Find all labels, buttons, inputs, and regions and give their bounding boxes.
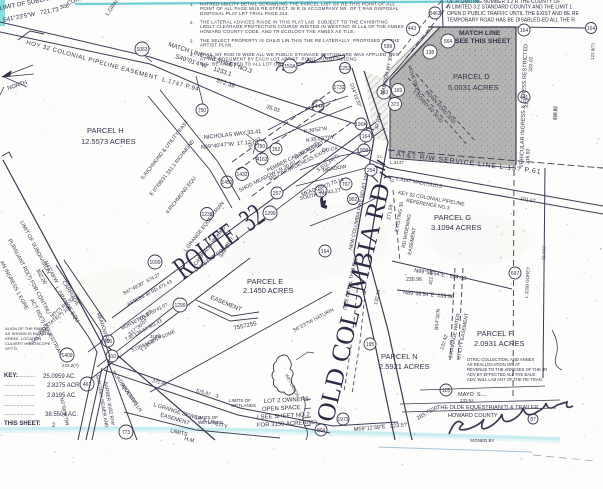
svg-text:169: 169 [394,88,403,94]
svg-text:902: 902 [349,197,358,203]
svg-text:THIS SHEET:: THIS SHEET: [4,421,41,427]
svg-text:1299: 1299 [174,303,185,309]
svg-text:......................: ...................... [4,392,35,398]
svg-text:1732: 1732 [333,85,344,91]
svg-text:HOWARD COUNTY: HOWARD COUNTY [448,413,498,419]
svg-text:162: 162 [272,147,281,153]
svg-text:138: 138 [426,50,435,56]
svg-text:373: 373 [391,102,400,108]
svg-text:697: 697 [511,271,520,277]
svg-text:WETLANDS: WETLANDS [231,403,256,408]
svg-text:L.3147: L.3147 [390,160,404,165]
svg-text:750: 750 [257,144,266,150]
svg-text:TEMPORARY ROAD HAS BE DISABLED: TEMPORARY ROAD HAS BE DISABLED-ED ALL TH… [447,18,575,24]
svg-text:......................: ...................... [4,382,35,388]
svg-text:HOWARD COUNTY CODE, AND TR ECO: HOWARD COUNTY CODE, AND TR ECOLOGY THE A… [200,29,355,34]
svg-text:257: 257 [273,191,282,197]
svg-text:OPEN D PUBLIC TRAFFIC UNTIL TH: OPEN D PUBLIC TRAFFIC UNTIL THE EXIST AN… [447,11,579,17]
svg-text:216.92: 216.92 [525,148,532,164]
svg-text:MATCH LINE: MATCH LINE [459,30,501,37]
svg-text:164: 164 [587,26,596,32]
svg-text:2.8275 ACRD: 2.8275 ACRD [47,383,84,389]
svg-text:564: 564 [444,39,453,45]
svg-text:4.: 4. [190,53,194,58]
svg-text:SIGNED BY: SIGNED BY [470,438,495,443]
svg-text:222.2(?): 222.2(?) [62,363,79,368]
svg-text:3.1094 ACRES: 3.1094 ACRES [431,223,481,232]
svg-text:87: 87 [530,417,536,423]
svg-text:1.: 1. [190,2,194,7]
svg-text:1432: 1432 [236,172,247,178]
svg-text:37: 37 [377,154,382,159]
svg-text:164: 164 [362,134,371,140]
svg-text:216.92: 216.92 [552,106,557,120]
svg-text:PARCEL F: PARCEL F [477,329,513,338]
svg-text:164: 164 [520,28,529,34]
svg-text:443: 443 [408,26,417,32]
svg-text:1299: 1299 [264,211,275,217]
svg-text:0463: 0463 [429,11,440,17]
svg-text:190A: 190A [355,122,367,128]
svg-text:PARCEL D: PARCEL D [453,72,490,81]
svg-text:164: 164 [321,249,330,255]
svg-text:122.8(?): 122.8(?) [590,43,596,60]
svg-text:PARCEL H: PARCEL H [87,126,124,135]
svg-text:3.: 3. [190,39,194,44]
svg-text:25.0959 AC.: 25.0959 AC. [43,374,76,380]
svg-text:1099: 1099 [149,260,160,266]
svg-text:......................: ...................... [4,402,35,408]
svg-text:2.: 2. [190,20,194,25]
svg-text:PARCEL E: PARCEL E [247,277,283,286]
svg-text:599: 599 [384,44,393,50]
svg-text:2.5921 ACRES: 2.5921 ACRES [379,362,429,371]
svg-text:SEE THIS SHEET: SEE THIS SHEET [455,38,511,45]
svg-text:773: 773 [122,430,131,436]
svg-text:OPT'D.: OPT'D. [5,346,18,351]
svg-text:31.1: 31.1 [524,98,530,108]
svg-text:KEY:: KEY: [4,373,18,379]
svg-text:ADV. WILL LAB ANT OF THE RE-TR: ADV. WILL LAB ANT OF THE RE-TRAN. [467,377,543,382]
svg-text:254: 254 [367,168,376,174]
svg-text:230.96: 230.96 [406,277,422,283]
svg-text:21.612: 21.612 [541,246,546,260]
svg-text:.............: ............. [17,373,35,379]
svg-text:12.5573 ACRES: 12.5573 ACRES [81,137,136,146]
svg-text:2.0931 ACRES: 2.0931 ACRES [474,339,524,348]
svg-text:1253: 1253 [339,66,350,72]
svg-text:N LIMITED 3.2 STANDARD COUNTY: N LIMITED 3.2 STANDARD COUNTY AND THE LI… [447,5,572,11]
svg-text:DISPOSAL PLAT LRT TRIAL PAGE 3: DISPOSAL PLAT LRT TRIAL PAGE 314. [200,11,289,16]
svg-text:ARTIST PLAN.: ARTIST PLAN. [200,43,233,48]
svg-text:4162: 4162 [256,157,267,163]
svg-text:5.0031 ACRES: 5.0031 ACRES [448,83,498,92]
svg-text:1973: 1973 [337,417,348,423]
svg-text:320.02: 320.02 [528,56,535,72]
svg-text:150A: 150A [284,64,296,70]
svg-text:1409: 1409 [61,353,72,359]
svg-text:2.1450 ACRES: 2.1450 ACRES [243,286,293,295]
svg-text:......................: ...................... [4,411,35,417]
svg-text:195: 195 [366,342,375,348]
svg-text:1063: 1063 [136,47,147,53]
svg-text:PARCEL N: PARCEL N [381,352,418,361]
svg-text:PARCEL G: PARCEL G [434,213,471,222]
svg-text:750: 750 [198,108,207,114]
